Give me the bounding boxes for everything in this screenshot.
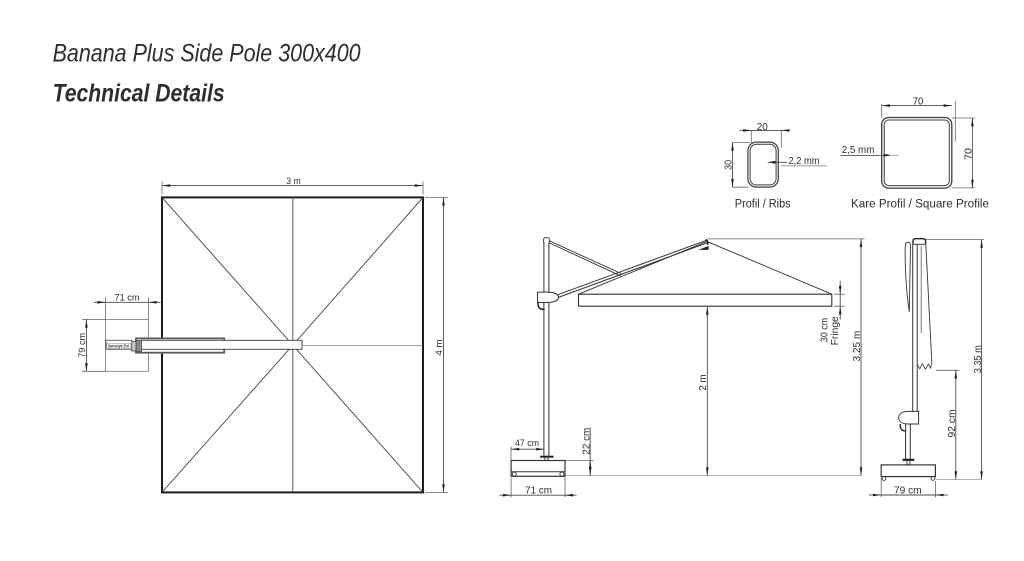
svg-text:92 cm: 92 cm (947, 410, 958, 438)
svg-text:2,2 mm: 2,2 mm (789, 155, 820, 167)
svg-text:70: 70 (913, 96, 924, 107)
svg-text:79 cm: 79 cm (894, 484, 922, 496)
svg-text:22 cm: 22 cm (581, 428, 592, 455)
svg-text:30: 30 (723, 160, 734, 170)
svg-text:4 m: 4 m (434, 340, 444, 356)
svg-text:Kare Profil / Square Profile: Kare Profil / Square Profile (851, 199, 989, 211)
svg-text:Şemsiye Evi: Şemsiye Evi (108, 344, 129, 349)
svg-text:71 cm: 71 cm (525, 485, 552, 497)
svg-text:47 cm: 47 cm (515, 438, 539, 448)
svg-text:70: 70 (963, 148, 974, 160)
svg-text:20: 20 (757, 122, 768, 133)
svg-text:Banana Plus Side Pole 300x400: Banana Plus Side Pole 300x400 (53, 40, 361, 68)
svg-text:30 cm: 30 cm (820, 318, 831, 342)
svg-text:71 cm: 71 cm (115, 292, 140, 302)
svg-text:Fringe: Fringe (830, 316, 841, 346)
svg-text:79 cm: 79 cm (77, 333, 87, 358)
svg-text:3.35 m: 3.35 m (973, 345, 984, 373)
svg-text:2,5 mm: 2,5 mm (842, 144, 875, 156)
svg-text:2 m: 2 m (698, 374, 709, 390)
svg-text:3.25 m: 3.25 m (852, 331, 863, 362)
svg-text:Profil / Ribs: Profil / Ribs (735, 198, 791, 210)
svg-text:3 m: 3 m (286, 176, 301, 186)
svg-text:Technical Details: Technical Details (53, 79, 225, 107)
